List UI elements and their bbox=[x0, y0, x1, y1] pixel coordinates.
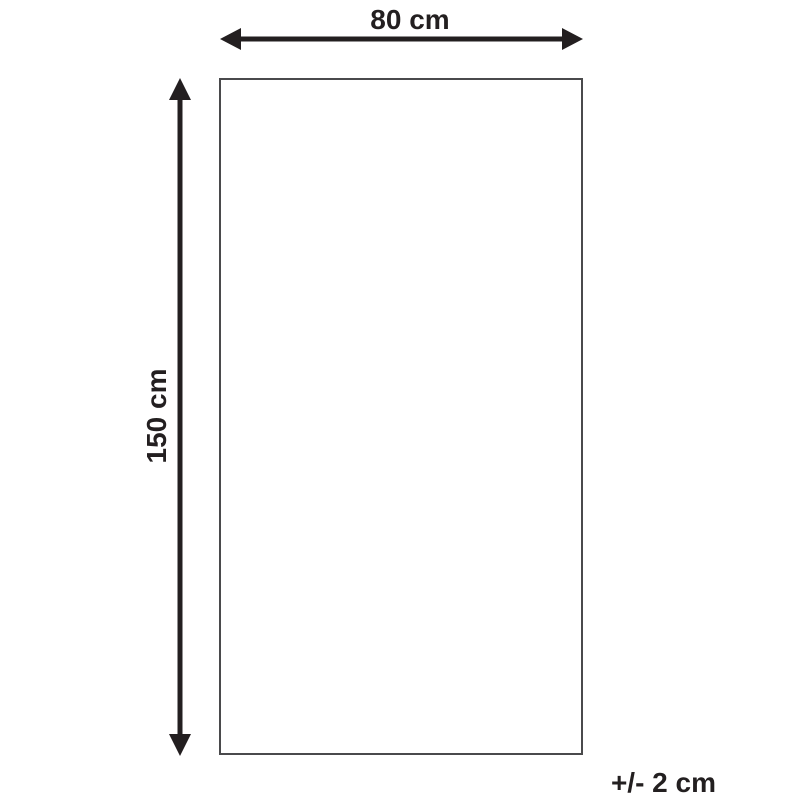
height-dimension-label: 150 cm bbox=[143, 369, 171, 464]
product-outline-rectangle bbox=[220, 79, 582, 754]
height-arrowhead-top-icon bbox=[169, 78, 191, 100]
width-arrowhead-right-icon bbox=[562, 28, 583, 50]
diagram-graphics bbox=[0, 0, 800, 800]
width-dimension-label: 80 cm bbox=[370, 6, 449, 34]
width-arrowhead-left-icon bbox=[220, 28, 241, 50]
tolerance-label: +/- 2 cm bbox=[611, 769, 716, 797]
height-arrowhead-bottom-icon bbox=[169, 734, 191, 756]
dimension-diagram: 80 cm 150 cm +/- 2 cm bbox=[0, 0, 800, 800]
